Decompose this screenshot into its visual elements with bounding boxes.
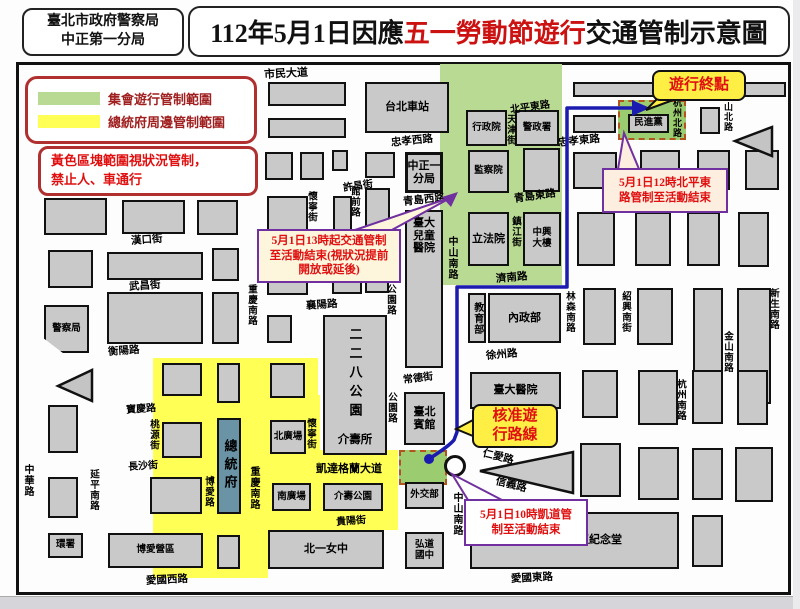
street-label-wuchang: 武昌街 [128,277,160,294]
window-right-edge [793,0,800,609]
rally-area-start [399,450,447,485]
callout-south-control: 5月1日10時凱道管 制至活動結束 [464,499,588,546]
agency-name-line1: 臺北市政府警察局 [47,13,159,32]
callout-south-line1: 5月1日10時凱道管 [480,508,572,523]
building-hongdao-label: 弘道 [415,540,434,551]
building-moe-label: 教育部 [471,302,483,335]
callout-west-control: 5月1日13時起交通管制 至活動結束(視狀況提前 開放或延後) [257,229,401,283]
street-label-jinshan_s: 金山南路 [720,331,734,373]
building-jing: 警政署 [515,110,559,146]
building-jspark: 介壽公園 [323,483,383,511]
street-label-chongqing_s: 重慶南路 [244,284,258,326]
city-block [583,288,616,345]
city-block [267,315,292,343]
building-guest: 臺北賓館 [404,392,445,445]
street-label-chongqing_s: 重慶南路 [246,466,261,510]
note-line2: 禁止人、車通行 [51,171,255,190]
city-block [150,477,202,514]
building-li-label: 立法院 [472,233,505,246]
building-xing-label: 行政院 [472,123,501,134]
street-label-zhenjiang: 鎮江街 [508,216,522,248]
building-huan-label: 環署 [56,540,75,551]
city-block [735,447,773,502]
city-block [738,212,769,267]
building-guest-label: 賓館 [414,419,436,432]
callout-north-line1: 5月1日12時北平東 [619,176,711,191]
callout-approved-route: 核准遊 行路線 [472,404,558,448]
building-jian: 監察院 [468,150,509,193]
legend-row-yellow: 總統府周邊管制範圍 [38,112,244,131]
building-zhongxing-label: 中興 [532,228,551,239]
city-block [217,363,240,403]
building-beiyi: 北一女中 [268,530,384,569]
street-label-changsha: 長沙街 [127,456,158,473]
street-label-linsen_s: 林森南路 [562,291,576,333]
building-moi: 內政部 [488,293,561,343]
callout-route-line2: 行路線 [492,426,537,446]
city-block [638,447,679,500]
city-block [107,252,203,280]
green-swatch-icon [38,92,100,105]
street-label-xinsheng_s: 新生南路 [766,288,780,330]
street-label-shaoxing_s: 紹興南街 [618,291,632,333]
street-label-tianjin: 天津街 [503,114,517,146]
building-np: 北廣場 [270,420,306,454]
city-block [107,292,203,344]
callout-north-line2: 路管制至活動結束 [619,191,711,206]
building-jspark-label: 介壽公園 [334,492,372,503]
city-block [332,150,348,171]
building-pres: 總統府 [217,418,241,514]
city-block [687,212,720,266]
city-block [692,370,723,424]
building-station: 台北車站 [365,82,449,133]
yellow-swatch-icon [38,115,100,128]
window-bottom-edge [0,596,800,609]
street-label-hankou: 漢口街 [130,231,162,248]
street-label-yanping_s: 延平南路 [86,469,100,511]
street-label-xuzhou: 徐州路 [485,345,518,363]
building-moe: 教育部 [468,293,486,343]
building-mofa: 外交部 [405,482,444,509]
street-label-ketagalan: 凱達格蘭大道 [316,460,382,476]
legend-green-label: 集會遊行管制範圍 [108,89,212,108]
street-label-hangzhou_s: 杭州南路 [673,379,687,421]
city-block [48,250,93,288]
map-title-highlight: 五一勞動節遊行 [404,13,586,50]
building-branch-label: 分局 [413,173,435,186]
street-label-jinan: 濟南路 [495,268,528,286]
note-line1: 黃色區塊範圍視狀況管制， [51,152,255,171]
street-label-xiangyang: 襄陽路 [305,296,337,313]
city-block [700,107,720,134]
building-ntuh-label: 臺大醫院 [494,384,538,397]
street-label-shimin: 市民大道 [264,64,309,82]
city-block [577,212,615,266]
building-ntuch: 臺大兒童醫院 [405,210,443,368]
building-ntuch-label: 醫院 [413,242,435,255]
building-xing: 行政院 [466,110,507,146]
city-block [217,535,240,569]
street-label-aiguo_e: 愛國東路 [511,569,554,586]
city-block [162,422,202,458]
building-np-label: 北廣場 [274,432,303,443]
building-beiyi-label: 北一女中 [304,543,348,556]
city-block [692,448,723,500]
building-ntuch-label: 兒童 [413,230,435,243]
callout-west-line2: 至活動結束(視狀況提前 [270,249,389,264]
agency-name-line2: 中正第一分局 [61,32,145,51]
city-block [268,118,346,138]
city-block [212,292,239,344]
building-hongdao-label: 國中 [415,551,434,562]
building-li: 立法院 [468,212,509,266]
city-block [122,200,185,234]
street-label-huaining: 懷寧街 [304,191,318,223]
park-228: 二二八公園 介壽所 [323,315,387,455]
building-mofa-label: 外交部 [410,490,439,501]
building-jian-label: 監察院 [474,166,503,177]
map-title-prefix: 112年5月1日因應 [210,13,404,50]
building-dpp: 民進黨 [628,114,669,133]
building-boai-label: 博愛營區 [136,545,174,556]
callout-west-line3: 開放或延後) [298,263,359,278]
city-block [197,200,238,235]
street-label-zhonghua: 中華路 [20,464,35,497]
street-label-gongyuan: 公園路 [383,284,397,316]
legend-box: 集會遊行管制範圍 總統府周邊管制範圍 [25,76,257,144]
street-label-huaining: 懷寧街 [303,418,317,450]
map-title-suffix: 交通管制示意圖 [586,13,768,50]
street-label-zhongshan_s: 中山南路 [444,236,459,280]
building-dpp-label: 民進黨 [634,118,663,129]
building-zhongxing: 中興大樓 [523,212,561,266]
building-zhongxing-label: 大樓 [532,239,551,250]
street-label-zhongshan_s: 中山南路 [449,492,464,536]
building-jing-label: 警政署 [523,123,552,134]
callout-north-control: 5月1日12時北平東 路管制至活動結束 [602,168,728,213]
city-block [44,198,107,235]
building-moi-label: 內政部 [508,312,541,325]
street-label-boai_rd: 博愛路 [201,476,215,508]
building-guest-label: 臺北 [414,406,436,419]
building-police-label: 警察局 [52,324,81,335]
callout-west-line1: 5月1日13時起交通管制 [272,234,387,249]
city-block [635,212,671,266]
building-boai: 博愛營區 [108,533,203,568]
city-block [212,248,239,281]
city-block [48,405,78,453]
street-label-hengyang: 衡陽路 [107,342,139,359]
city-block [737,370,768,425]
city-block [745,150,779,190]
city-block [580,443,621,497]
city-block [582,370,618,418]
city-block [48,477,78,518]
street-label-baoqing: 寶慶路 [125,399,156,416]
city-block [300,152,324,180]
building-branch-label: 中正一 [408,160,441,173]
callout-end-point: 遊行終點 [652,70,746,101]
city-block [637,288,673,345]
city-block [265,152,293,180]
street-label-aiguo_w: 愛國西路 [146,571,189,588]
building-hongdao: 弘道國中 [405,532,444,569]
city-block [692,515,723,567]
city-block [268,82,346,106]
street-label-taoyuan: 桃源街 [146,419,160,451]
agency-title-box: 臺北市政府警察局 中正第一分局 [22,8,184,56]
building-station-label: 台北車站 [385,101,429,114]
street-label-guanqian: 館前路 [347,186,361,218]
street-label-hangzhou_n: 杭州北路 [671,98,684,138]
jieshou-suo-label: 介壽所 [338,431,373,447]
street-label-gongyuan: 公園路 [384,392,398,424]
building-huan: 環署 [48,533,83,558]
building-pres-label: 總統府 [222,439,237,493]
callout-end-point-label: 遊行終點 [669,76,729,96]
building-ntuch-label: 臺大 [413,217,435,230]
callout-south-line2: 制至活動結束 [492,523,561,538]
building-branch: 中正一分局 [405,152,443,193]
legend-note-box: 黃色區塊範圍視狀況管制， 禁止人、車通行 [38,146,258,196]
legend-yellow-label: 總統府周邊管制範圍 [108,112,225,131]
map-title-box: 112年5月1日因應五一勞動節遊行交通管制示意圖 [188,6,790,57]
city-block [162,363,202,396]
street-label-guiyang: 貴陽街 [335,511,366,528]
legend-row-green: 集會遊行管制範圍 [38,89,244,108]
park-228-label: 二二八公園 [346,327,365,422]
building-sp: 南廣場 [272,483,311,511]
callout-route-line1: 核准遊 [492,407,537,427]
building-sp-label: 南廣場 [277,492,306,503]
city-block [270,363,305,398]
city-block [638,370,678,425]
